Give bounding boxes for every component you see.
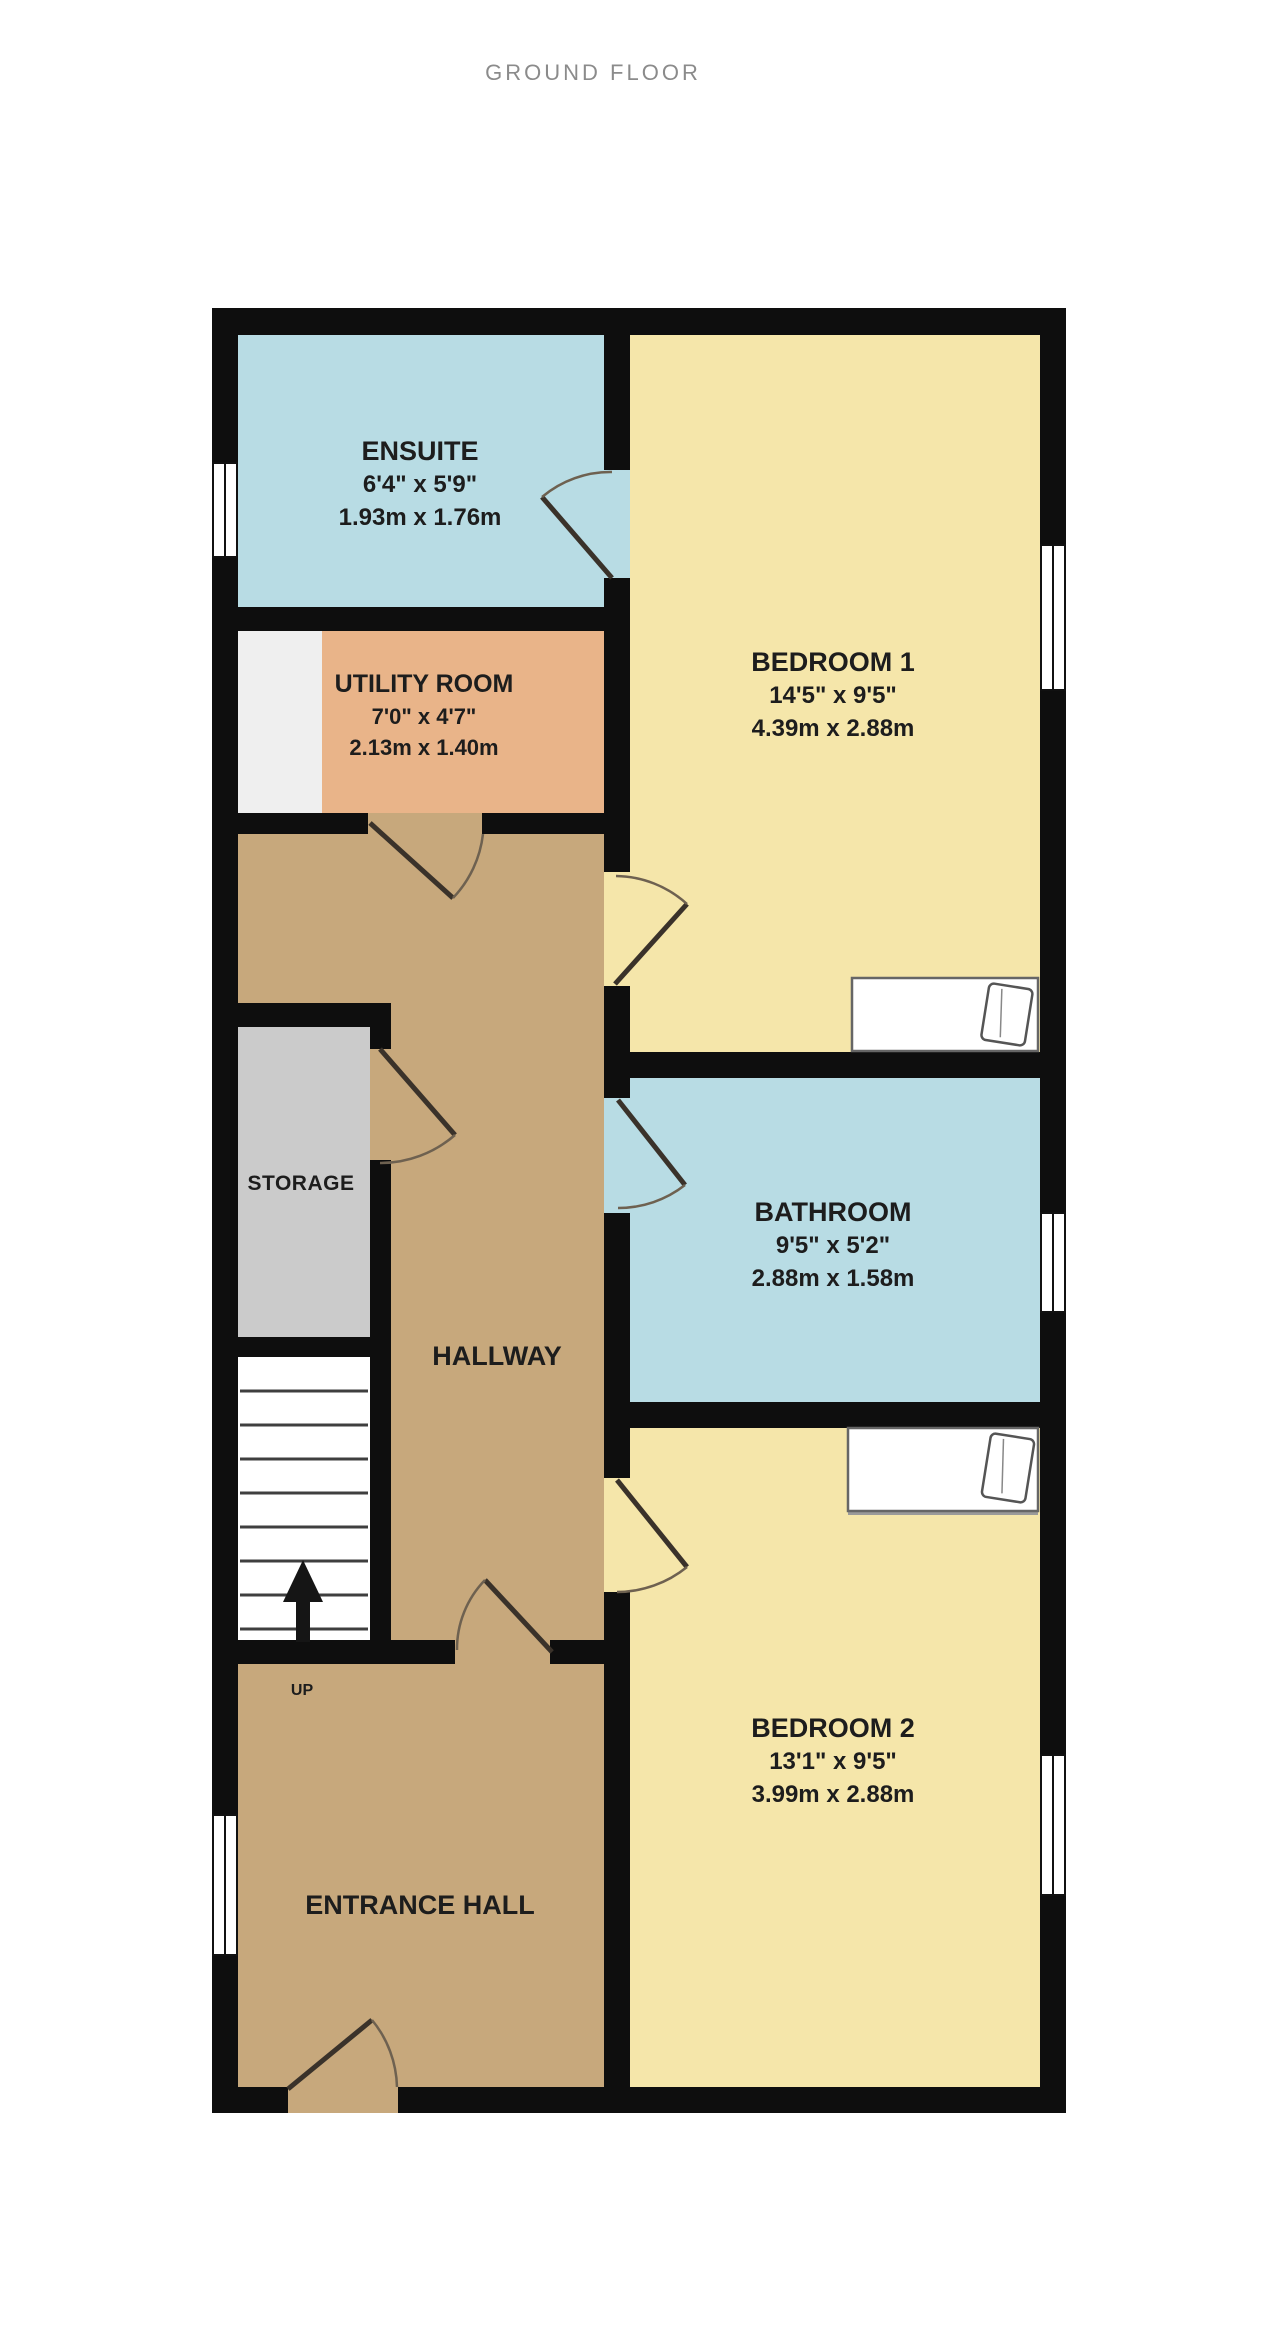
wall-central-seg5	[604, 1592, 630, 2087]
wall-hall-entrance-right	[550, 1640, 630, 1664]
wall-utility-bottom-left	[238, 813, 368, 834]
bedroom2-door-gap-floor	[604, 1478, 630, 1592]
ensuite-dims-metric: 1.93m x 1.76m	[339, 501, 502, 534]
wall-outer-left	[212, 308, 238, 2113]
bathroom-door-gap-floor	[604, 1098, 630, 1213]
wall-bathroom-bedroom2	[604, 1402, 1066, 1428]
bathroom-dims-metric: 2.88m x 1.58m	[752, 1262, 915, 1295]
room-label-utility: UTILITY ROOM 7'0" x 4'7" 2.13m x 1.40m	[335, 668, 514, 763]
wall-utility-bottom-right	[482, 813, 630, 834]
bathroom-name: BATHROOM	[752, 1196, 915, 1229]
bedroom1-dims-imperial: 14'5" x 9'5"	[751, 679, 915, 712]
room-entrance-hall	[238, 1664, 604, 2087]
stairs-up-label: UP	[291, 1682, 313, 1700]
ensuite-door-gap-floor	[604, 470, 630, 578]
bedroom2-dims-metric: 3.99m x 2.88m	[751, 1778, 915, 1811]
wall-central-seg4	[604, 1213, 630, 1478]
entrance-hall-name: ENTRANCE HALL	[305, 1890, 535, 1920]
wall-outer-bottom-left	[212, 2087, 288, 2113]
room-label-bedroom1: BEDROOM 1 14'5" x 9'5" 4.39m x 2.88m	[751, 646, 915, 745]
wall-central-seg1	[604, 330, 630, 470]
plan-title: GROUND FLOOR	[485, 60, 701, 86]
wall-storage-right-stub	[370, 1025, 391, 1049]
utility-name: UTILITY ROOM	[335, 668, 514, 701]
front-door-gap-floor	[288, 2087, 398, 2113]
wall-central-seg3	[604, 986, 630, 1098]
room-label-storage: STORAGE	[248, 1172, 355, 1196]
wall-outer-bottom-right	[398, 2087, 1066, 2113]
utility-dims-metric: 2.13m x 1.40m	[335, 732, 514, 763]
bedroom2-dims-imperial: 13'1" x 9'5"	[751, 1745, 915, 1778]
hallway-name: HALLWAY	[432, 1341, 562, 1371]
room-label-bedroom2: BEDROOM 2 13'1" x 9'5" 3.99m x 2.88m	[751, 1712, 915, 1811]
wall-outer-top	[212, 308, 1066, 335]
utility-recess	[238, 631, 322, 813]
bedroom1-door-gap-floor	[604, 872, 630, 986]
storage-name: STORAGE	[248, 1172, 355, 1195]
stairs-well	[238, 1357, 370, 1640]
room-label-ensuite: ENSUITE 6'4" x 5'9" 1.93m x 1.76m	[339, 435, 502, 534]
room-label-entrance-hall: ENTRANCE HALL	[305, 1890, 535, 1921]
up-text: UP	[291, 1682, 313, 1699]
room-label-bathroom: BATHROOM 9'5" x 5'2" 2.88m x 1.58m	[752, 1196, 915, 1295]
utility-door-gap-floor	[368, 813, 482, 834]
bathroom-dims-imperial: 9'5" x 5'2"	[752, 1229, 915, 1262]
wall-hall-entrance-left	[212, 1640, 455, 1664]
wall-outer-right	[1040, 308, 1066, 2113]
bedroom2-name: BEDROOM 2	[751, 1712, 915, 1745]
room-label-hallway: HALLWAY	[432, 1341, 562, 1372]
hall-door-gap-floor	[455, 1640, 550, 1664]
wall-ensuite-bottom	[238, 607, 630, 631]
wall-stairs-divider	[238, 1337, 391, 1357]
bedroom1-dims-metric: 4.39m x 2.88m	[751, 712, 915, 745]
ensuite-dims-imperial: 6'4" x 5'9"	[339, 468, 502, 501]
utility-dims-imperial: 7'0" x 4'7"	[335, 701, 514, 732]
ensuite-name: ENSUITE	[339, 435, 502, 468]
bedroom1-name: BEDROOM 1	[751, 646, 915, 679]
storage-door-gap-floor	[370, 1049, 391, 1160]
floor-plan-page: GROUND FLOOR	[0, 0, 1280, 2331]
wall-storage-top	[238, 1003, 391, 1027]
wall-storage-right	[370, 1160, 391, 1642]
wall-bedroom1-bathroom	[604, 1052, 1066, 1078]
